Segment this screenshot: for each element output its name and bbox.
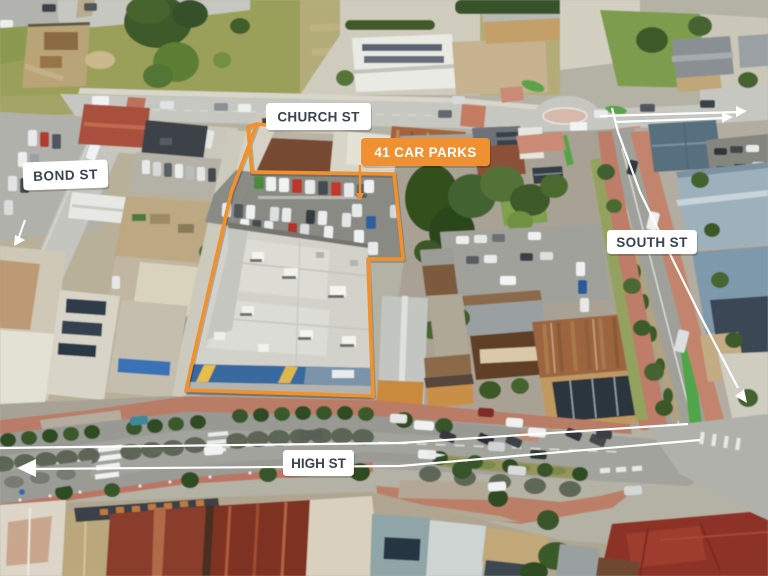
svg-text:BOND ST: BOND ST <box>33 167 98 184</box>
svg-text:SOUTH ST: SOUTH ST <box>616 235 688 250</box>
svg-text:HIGH ST: HIGH ST <box>291 456 347 471</box>
svg-text:41 CAR PARKS: 41 CAR PARKS <box>374 145 476 160</box>
svg-text:CHURCH ST: CHURCH ST <box>277 109 360 124</box>
